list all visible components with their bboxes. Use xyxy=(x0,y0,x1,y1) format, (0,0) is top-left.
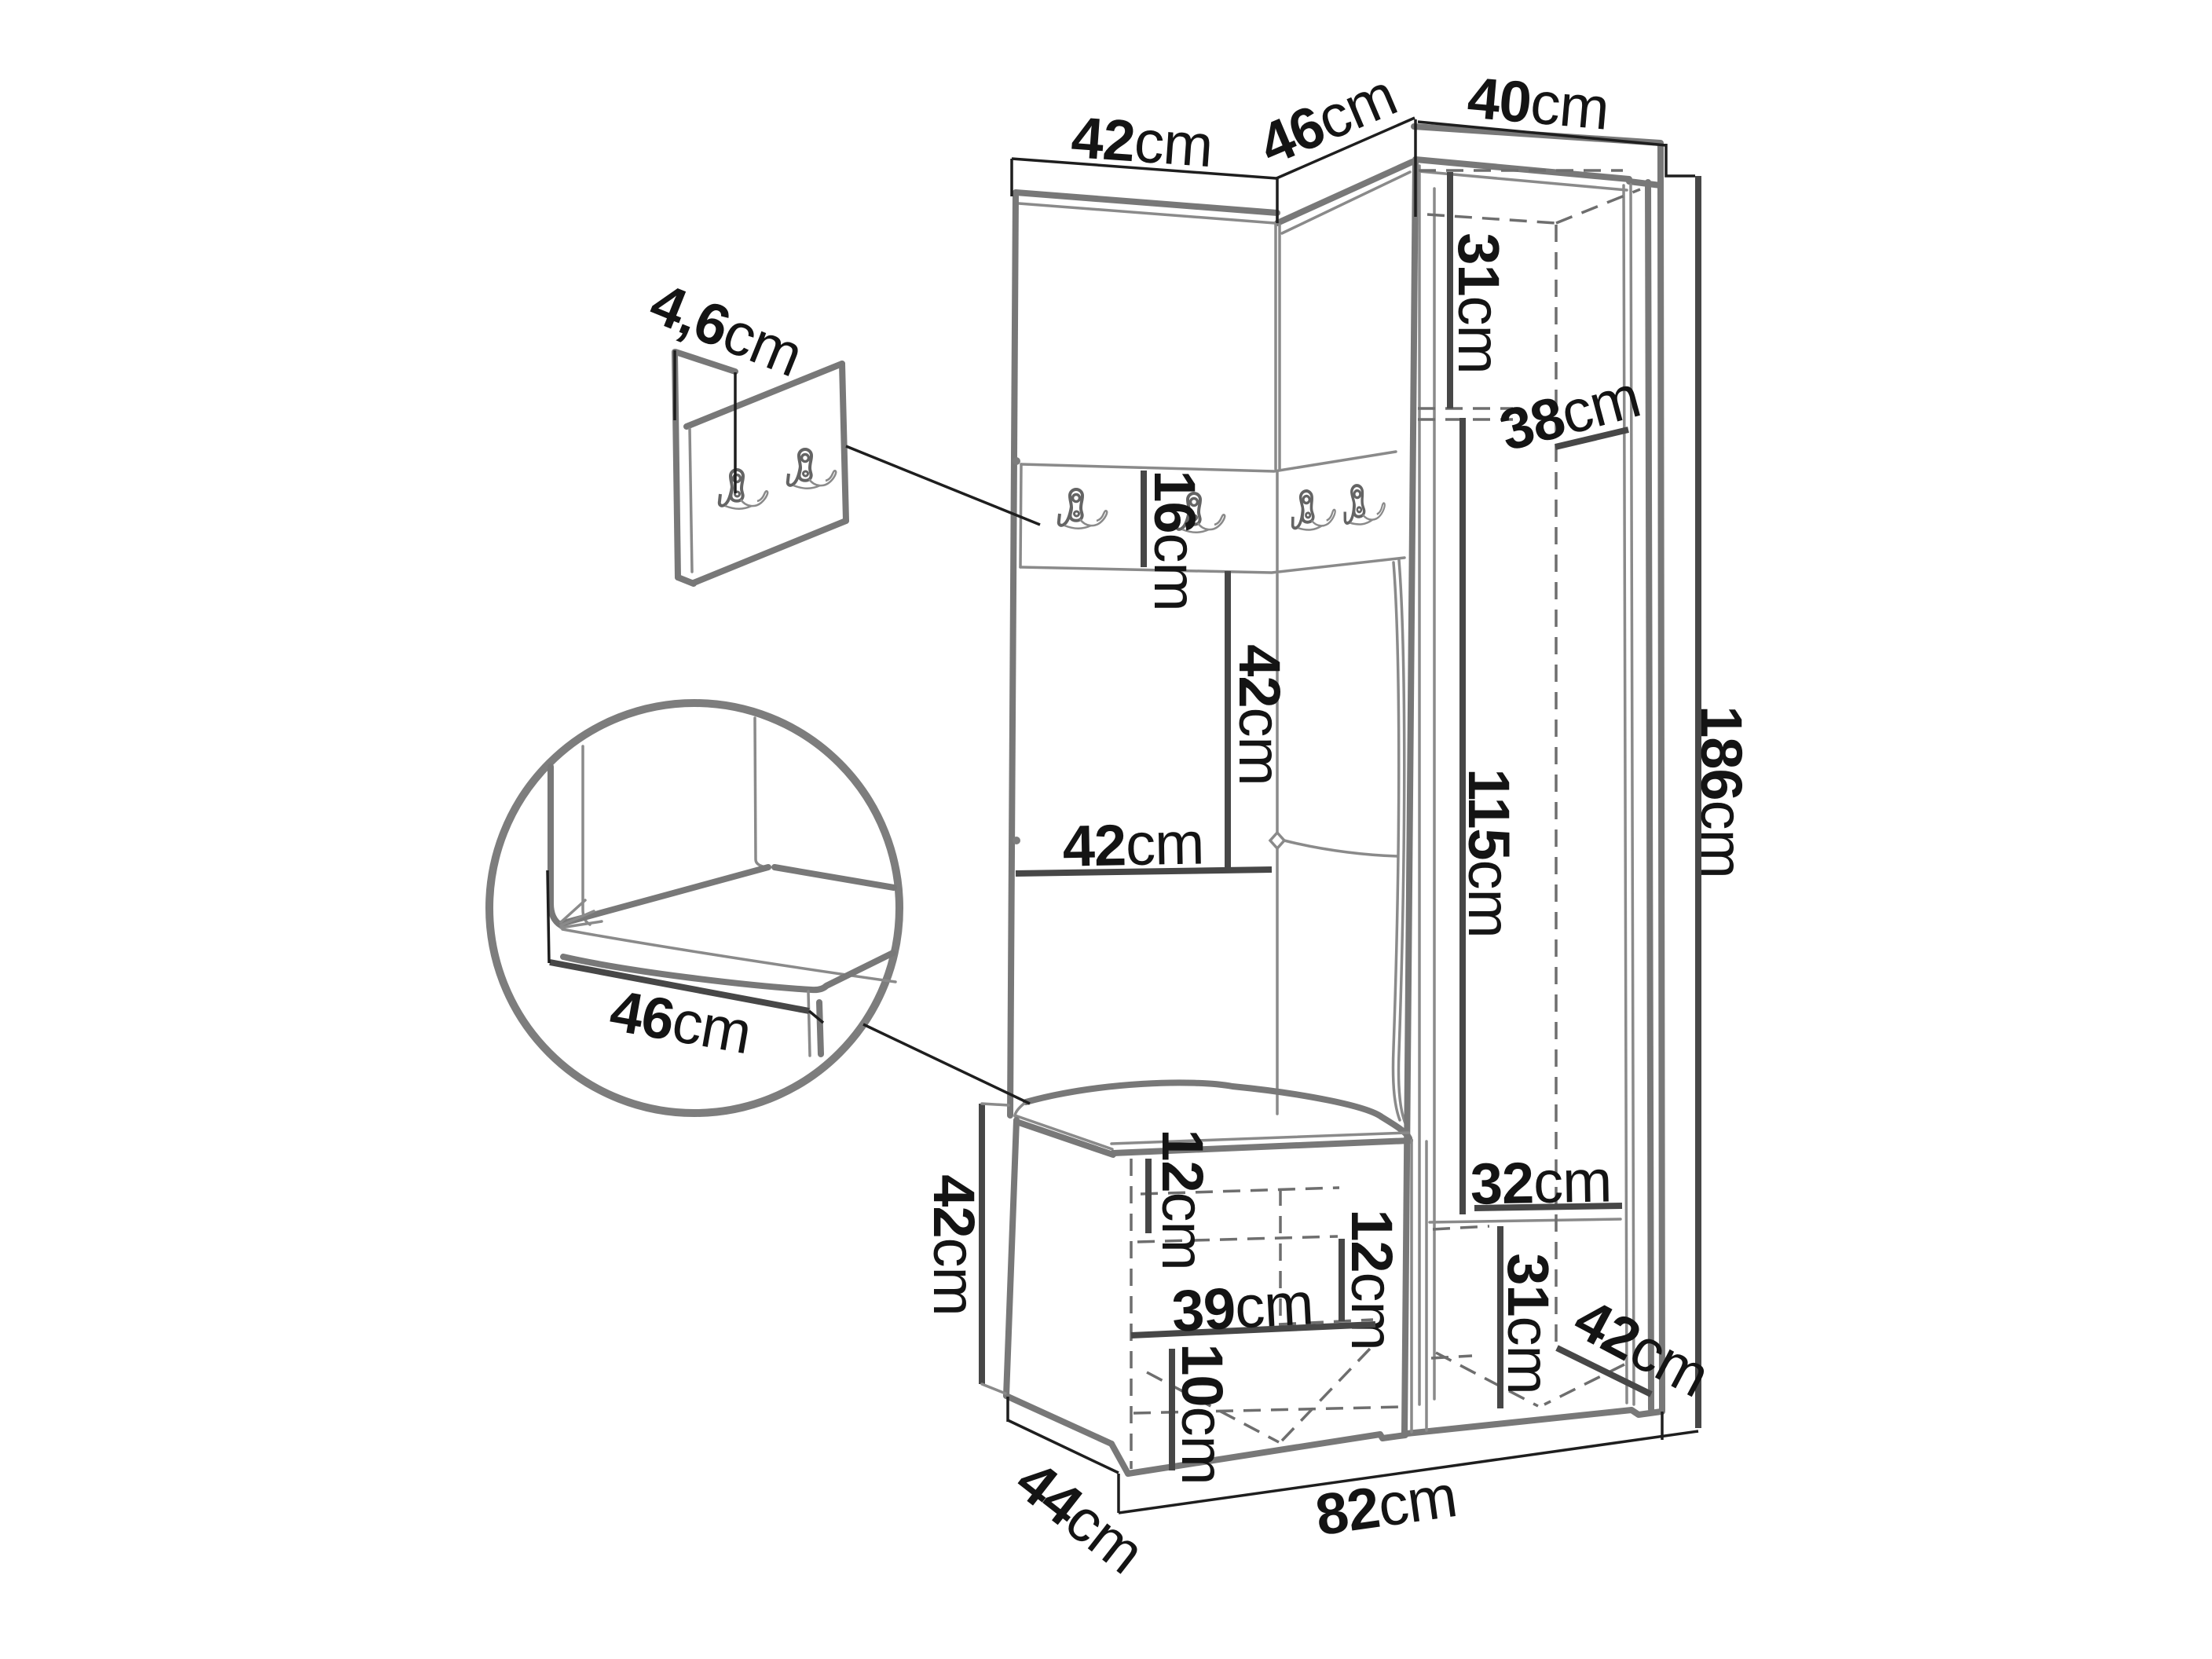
svg-text:42cm: 42cm xyxy=(1226,644,1293,786)
svg-text:40cm: 40cm xyxy=(1465,64,1611,142)
svg-text:186cm: 186cm xyxy=(1688,705,1755,878)
svg-text:10cm: 10cm xyxy=(1169,1343,1236,1485)
svg-text:31cm: 31cm xyxy=(1445,233,1512,374)
svg-text:42cm: 42cm xyxy=(921,1174,987,1316)
svg-text:12cm: 12cm xyxy=(1339,1209,1405,1350)
svg-text:32cm: 32cm xyxy=(1470,1148,1612,1217)
svg-text:12cm: 12cm xyxy=(1149,1129,1216,1270)
svg-text:31cm: 31cm xyxy=(1495,1253,1562,1394)
svg-text:42cm: 42cm xyxy=(1062,810,1204,879)
svg-text:115cm: 115cm xyxy=(1456,768,1522,938)
svg-text:39cm: 39cm xyxy=(1170,1270,1315,1344)
svg-text:42cm: 42cm xyxy=(1069,104,1214,180)
svg-text:16cm: 16cm xyxy=(1141,470,1208,611)
